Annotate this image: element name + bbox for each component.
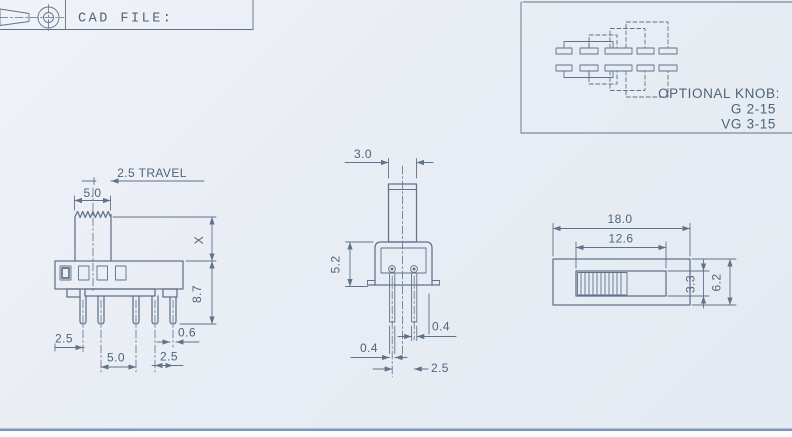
dim-terminal-spacing-front: 2.5	[373, 361, 449, 375]
cad-file-label: CAD FILE:	[78, 12, 173, 27]
slot-length-value: 12.6	[609, 232, 634, 246]
dim-terminal-thickness-right: 0.4	[398, 320, 456, 341]
dim-knob-width-side: 5.0	[75, 186, 111, 210]
dim-stem-height-x: X	[113, 217, 216, 324]
third-angle-projection-icon	[0, 5, 64, 31]
dim-terminal-thickness-left: 0.4	[351, 326, 407, 360]
dim-pin-spacing-center: 5.0	[101, 351, 136, 370]
pin-spacing-center-value: 5.0	[107, 351, 125, 365]
bottom-border-line	[0, 429, 792, 432]
bottom-margin	[0, 431, 792, 437]
dim-pin-spacing-left: 2.5	[55, 332, 84, 352]
terminal-spacing-value: 2.5	[431, 361, 449, 375]
dim-pin-spacing-right: 2.5	[152, 350, 183, 369]
title-block: CAD FILE:	[0, 0, 253, 31]
terminal-thickness-right-value: 0.4	[432, 320, 450, 334]
side-view-outline	[55, 188, 183, 372]
stem-height-value: X	[192, 236, 206, 244]
body-height-value: 8.7	[190, 285, 204, 303]
top-view: 18.0 12.6 3.3	[553, 212, 736, 308]
dim-body-height-side: 8.7	[190, 261, 215, 324]
dim-slot-width: 3.3	[668, 259, 709, 308]
travel-value: 2.5 TRAVEL	[117, 166, 187, 180]
knob-option-2-code: VG	[721, 117, 742, 132]
dim-travel: 2.5 TRAVEL	[82, 166, 204, 185]
body-height-front-value: 5.2	[329, 256, 343, 274]
slot-width-value: 3.3	[684, 275, 698, 293]
drawing-sheet: CAD FILE:	[0, 0, 792, 437]
body-width-value: 6.2	[710, 274, 724, 292]
knob-option-1-code: G	[731, 102, 742, 117]
knob-hatching	[581, 273, 621, 296]
pin-spacing-left-value: 2.5	[55, 332, 73, 346]
dim-body-width: 6.2	[692, 259, 736, 305]
optional-knob-panel: OPTIONAL KNOB: G 2-15 VG 3-15	[521, 2, 792, 133]
knob-width-value: 5.0	[84, 186, 102, 200]
pin-spacing-right-value: 2.5	[160, 350, 178, 364]
dim-knob-width-front: 3.0	[345, 147, 433, 178]
knob-option-1-size: 2-15	[747, 102, 776, 117]
top-view-outline	[553, 259, 690, 305]
terminal-width-value: 0.6	[178, 326, 196, 340]
optional-knob-heading: OPTIONAL KNOB:	[658, 86, 780, 101]
side-view: 2.5 TRAVEL 5.0 X 8.7	[55, 166, 216, 372]
terminal-thickness-left-value: 0.4	[360, 341, 378, 355]
body-length-value: 18.0	[608, 212, 633, 226]
knob-option-2-size: 3-15	[747, 117, 776, 132]
cad-drawing: CAD FILE:	[0, 0, 792, 437]
front-view-outline	[368, 166, 440, 377]
dim-body-height-front: 5.2	[329, 242, 374, 287]
dim-slot-length: 12.6	[576, 232, 666, 269]
front-view: 3.0 5.2 0.4 0.4	[329, 147, 457, 377]
dim-terminal-width: 0.6	[157, 326, 199, 345]
knob-width-front-value: 3.0	[354, 147, 372, 161]
